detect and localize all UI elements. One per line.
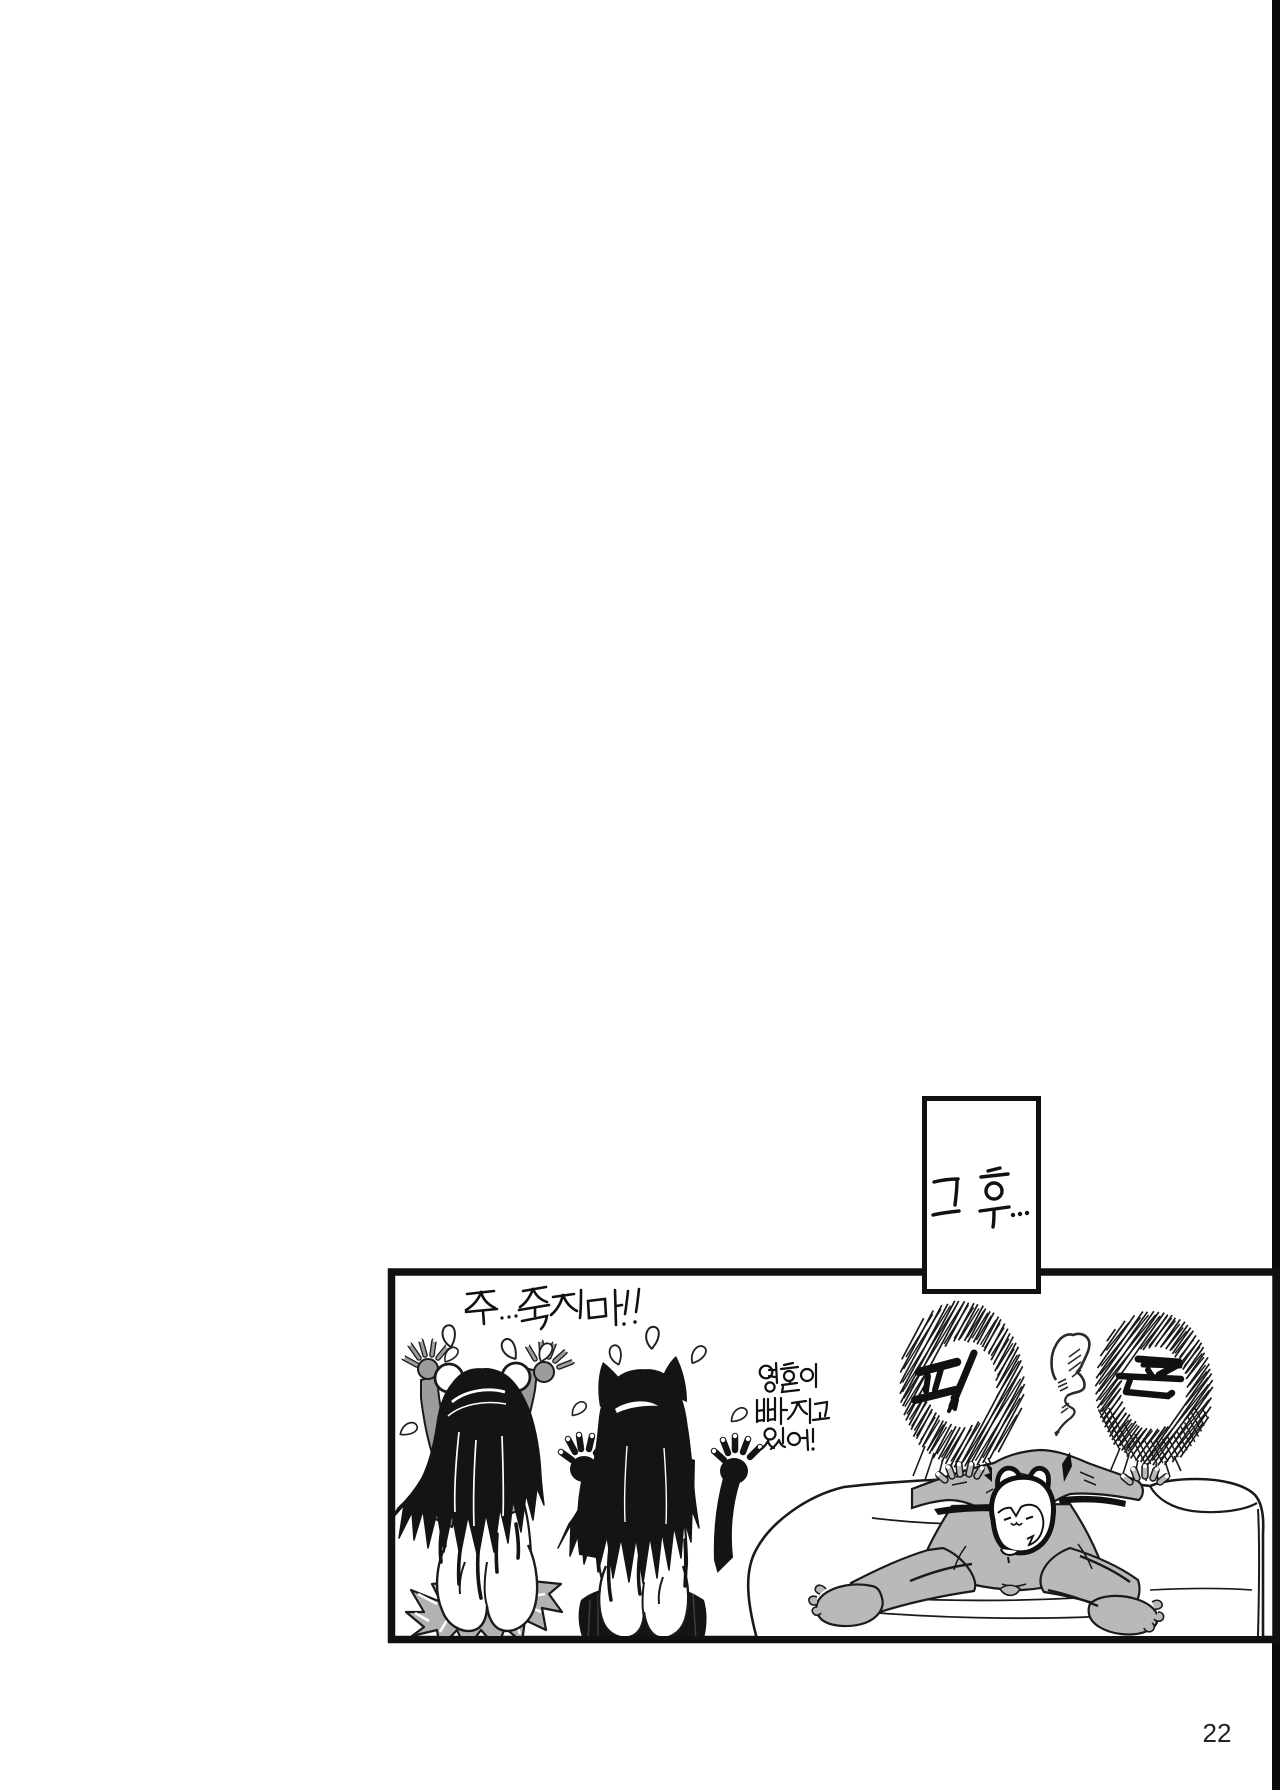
svg-text:22: 22 xyxy=(1203,1718,1232,1748)
